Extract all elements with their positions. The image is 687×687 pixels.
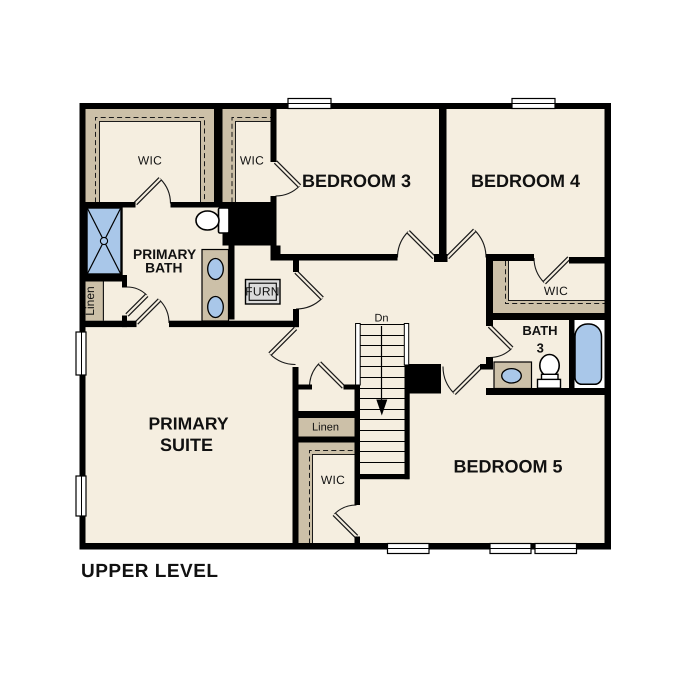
svg-text:UPPER LEVEL: UPPER LEVEL <box>81 561 218 582</box>
svg-text:WIC: WIC <box>240 154 264 168</box>
svg-text:WIC: WIC <box>138 154 162 168</box>
svg-text:Linen: Linen <box>83 286 97 315</box>
svg-text:WIC: WIC <box>321 473 345 487</box>
svg-text:BEDROOM 4: BEDROOM 4 <box>471 171 580 191</box>
svg-text:PRIMARY: PRIMARY <box>148 414 228 434</box>
svg-text:BATH: BATH <box>522 323 557 338</box>
svg-text:FURN: FURN <box>245 285 280 299</box>
svg-text:BEDROOM 5: BEDROOM 5 <box>453 456 562 476</box>
svg-text:SUITE: SUITE <box>160 435 213 455</box>
svg-text:3: 3 <box>537 340 544 355</box>
svg-text:BEDROOM 3: BEDROOM 3 <box>302 171 411 191</box>
svg-text:Dn: Dn <box>374 313 388 325</box>
svg-text:Linen: Linen <box>312 422 339 434</box>
svg-text:BATH: BATH <box>145 260 182 275</box>
svg-text:WIC: WIC <box>544 284 568 298</box>
